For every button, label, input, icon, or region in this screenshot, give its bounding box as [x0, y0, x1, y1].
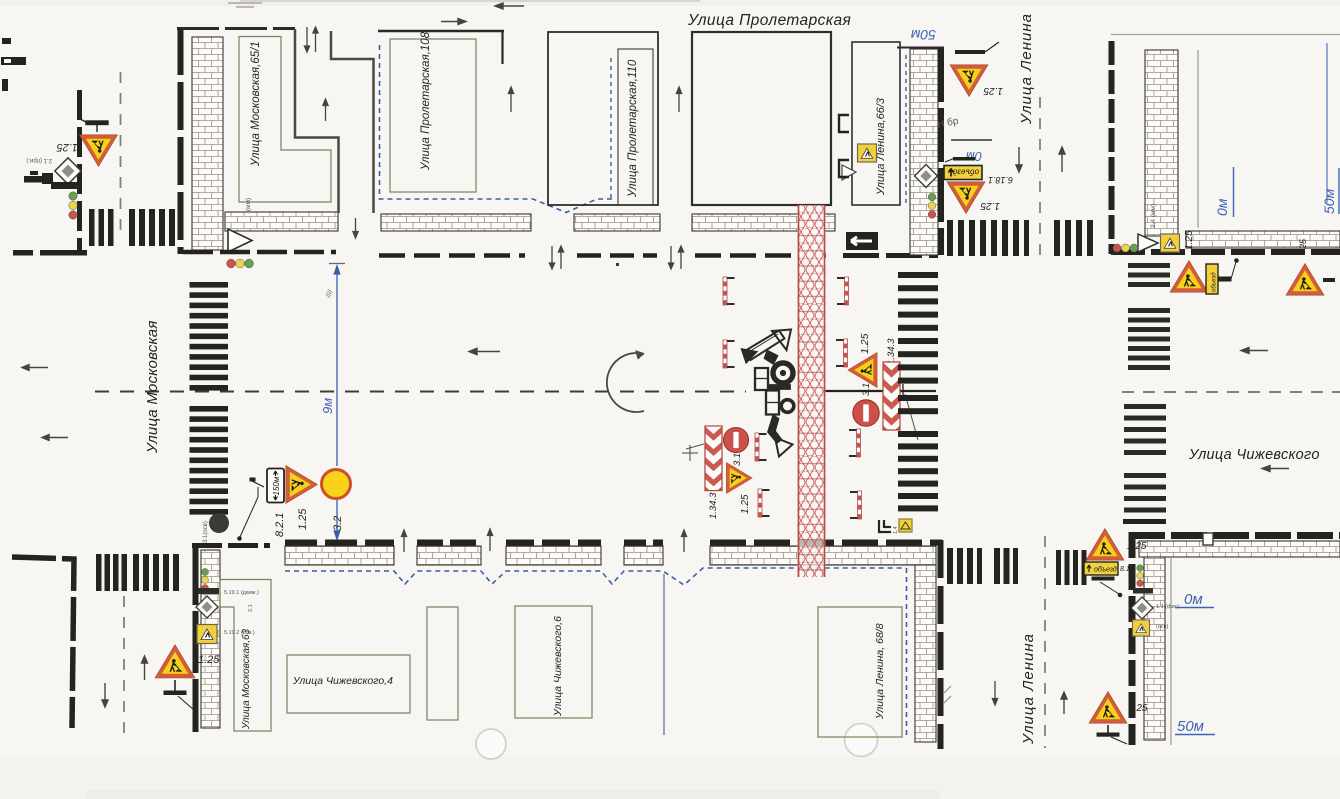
svg-text:3.1(осв): 3.1(осв) [203, 521, 209, 543]
svg-text:Улица Ленина: Улица Ленина [1018, 13, 1035, 125]
svg-text:0м: 0м [1184, 591, 1203, 608]
svg-text:Улица Московская,63: Улица Московская,63 [241, 628, 252, 730]
svg-text:1.25: 1.25 [1184, 230, 1195, 250]
svg-text:Улица Чижевского: Улица Чижевского [1188, 447, 1320, 463]
svg-text:Улица Ленина: Улица Ленина [1020, 633, 1037, 745]
svg-text:3.1: 3.1 [861, 383, 872, 396]
svg-text:Улица Чижевского,6: Улица Чижевского,6 [552, 616, 564, 717]
svg-text:6.18.1: 6.18.1 [988, 175, 1013, 185]
svg-text:50м: 50м [1177, 718, 1204, 735]
svg-text:1.34.3: 1.34.3 [886, 338, 897, 365]
svg-text:Улица Пролетарская: Улица Пролетарская [687, 12, 851, 29]
svg-text:1.25: 1.25 [983, 85, 1003, 96]
svg-text:150м: 150м [272, 476, 281, 495]
svg-text:Улица Чижевского,4: Улица Чижевского,4 [292, 675, 393, 687]
svg-text:8.1.1: 8.1.1 [1120, 566, 1136, 573]
svg-text:2.1: 2.1 [248, 604, 254, 612]
svg-text:0м: 0м [1214, 198, 1230, 216]
svg-text:(осв): (осв) [1156, 624, 1169, 630]
svg-text:1.25: 1.25 [198, 654, 220, 666]
svg-text:3.2: 3.2 [332, 516, 344, 531]
svg-text:объезд: объезд [1212, 272, 1218, 292]
svg-text:объезд: объезд [1094, 566, 1117, 574]
svg-text:Улица Ленина, 68/8: Улица Ленина, 68/8 [874, 623, 886, 720]
svg-text:Улица Московская,65/1: Улица Московская,65/1 [250, 41, 262, 167]
svg-text:объезд: объезд [952, 168, 979, 177]
svg-text:1.25: 1.25 [859, 333, 871, 354]
svg-text:1,4: 1,4 [893, 526, 899, 534]
svg-text:5.19.2 (осв.): 5.19.2 (осв.) [224, 630, 255, 636]
svg-text:Улица Пролетарская,108: Улица Пролетарская,108 [420, 31, 432, 171]
svg-text:1.25: 1.25 [1127, 541, 1147, 552]
svg-text:3.1: 3.1 [732, 453, 743, 466]
svg-text:1.34.3: 1.34.3 [708, 492, 719, 519]
svg-text:1.25: 1.25 [56, 141, 78, 153]
svg-text:Улица Московская: Улица Московская [144, 320, 161, 454]
svg-text:1.25: 1.25 [740, 494, 751, 514]
svg-text:1.25: 1.25 [297, 508, 309, 530]
svg-text:0м: 0м [966, 149, 982, 164]
svg-text:5.19.1 (движ.): 5.19.1 (движ.) [224, 590, 259, 596]
svg-text:1.25: 1.25 [980, 200, 1000, 211]
svg-text:50м: 50м [910, 27, 936, 43]
svg-text:1.25: 1.25 [1128, 703, 1148, 714]
svg-text:2.1 (при.): 2.1 (при.) [26, 157, 52, 163]
svg-text:25: 25 [1298, 238, 1308, 250]
svg-text:8.2.1: 8.2.1 [274, 513, 286, 537]
svg-text:Улица Пролетарская,110: Улица Пролетарская,110 [627, 59, 639, 198]
svg-text:2,4 (мм): 2,4 (мм) [1150, 204, 1157, 228]
svg-text:9м: 9м [320, 398, 335, 414]
svg-text:50м: 50м [1321, 188, 1337, 214]
